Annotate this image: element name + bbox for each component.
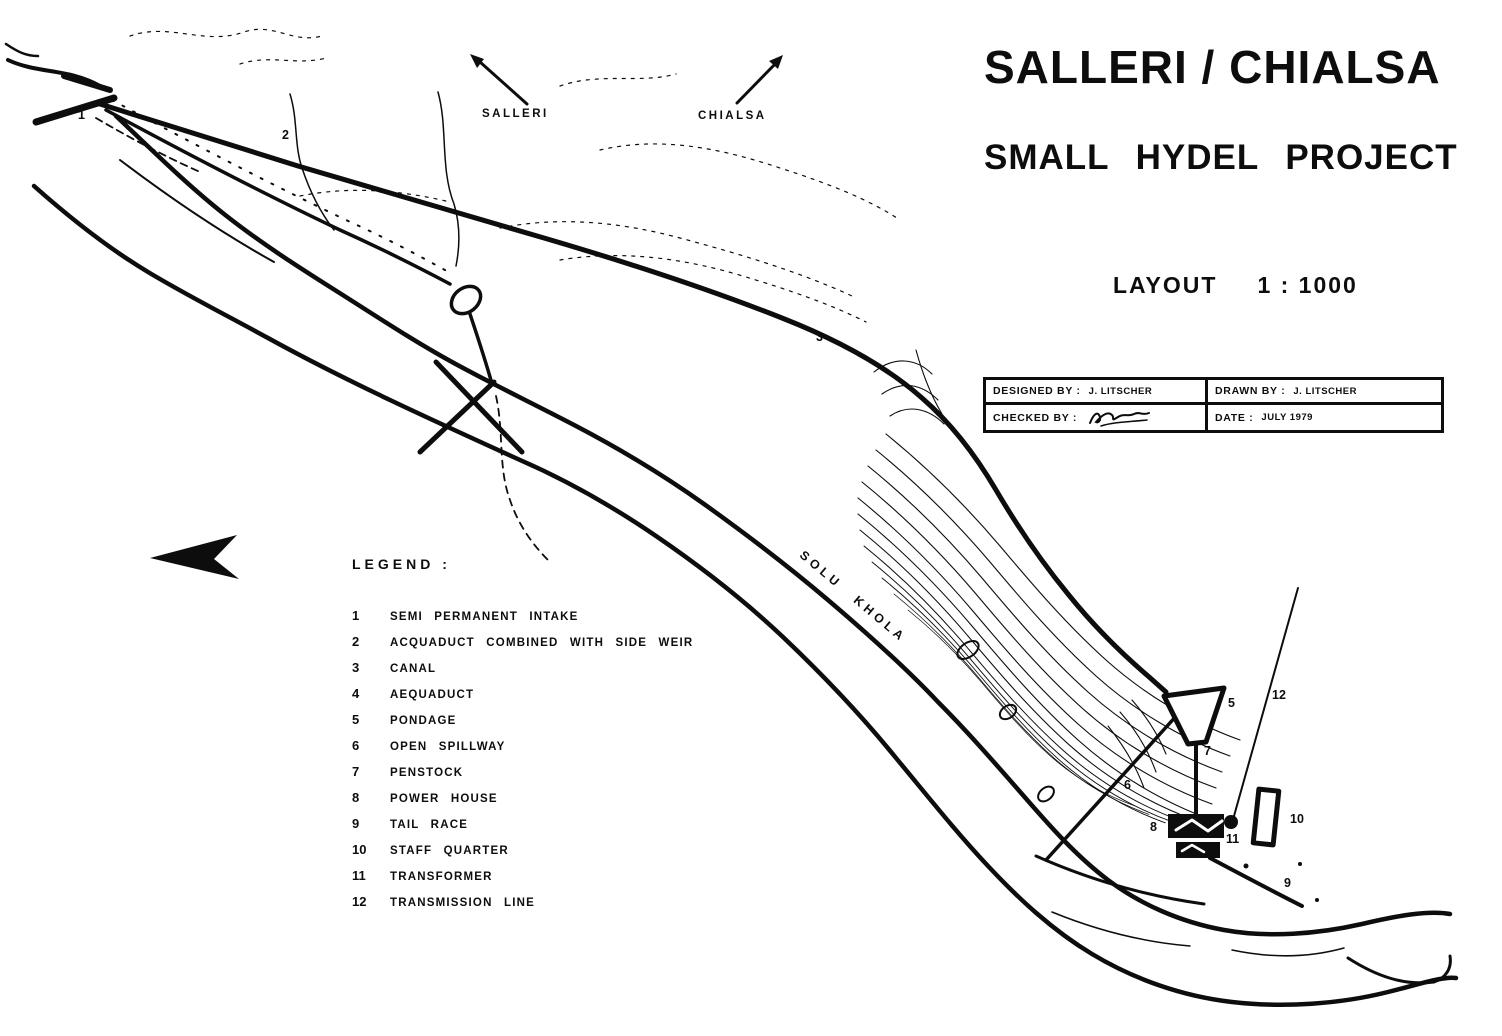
transmission-line-path: [1234, 588, 1298, 816]
legend-title: LEGEND :: [352, 556, 693, 572]
staff-quarter-shape: [1253, 789, 1279, 845]
direction-arrows: [470, 54, 783, 104]
pondage-funnel-shape: [1164, 688, 1224, 744]
legend-item-label: AEQUADUCT: [390, 689, 474, 701]
drawn-by-cell: DRAWN BY : J. LITSCHER: [1208, 380, 1441, 405]
legend-item-label: TRANSMISSION LINE: [390, 897, 535, 909]
legend-item-num: 2: [352, 634, 390, 649]
legend-item-num: 5: [352, 712, 390, 727]
checked-by-signature: [1087, 407, 1157, 429]
chialsa-arrow: [737, 55, 783, 103]
legend: LEGEND : 1SEMI PERMANENT INTAKE 2ACQUADU…: [352, 556, 693, 920]
legend-item: 11TRANSFORMER: [352, 868, 693, 884]
map-label-transmission-line: 12: [1272, 688, 1286, 702]
date-cell: DATE : JULY 1979: [1208, 405, 1441, 430]
intake-structure: [36, 76, 114, 122]
legend-item-num: 7: [352, 764, 390, 779]
legend-item: 9TAIL RACE: [352, 816, 693, 832]
map-label-penstock: 7: [1204, 744, 1211, 758]
north-arrow: [150, 535, 239, 579]
access-road-line: [1036, 856, 1204, 904]
checked-by-cell: CHECKED BY :: [986, 405, 1208, 430]
legend-item-num: 6: [352, 738, 390, 753]
legend-item-label: CANAL: [390, 663, 436, 675]
drawing-subtitle: SMALL HYDEL PROJECT: [984, 138, 1458, 178]
legend-item: 2ACQUADUCT COMBINED WITH SIDE WEIR: [352, 634, 693, 650]
drawing-title: SALLERI / CHIALSA: [984, 40, 1441, 94]
title-block: DESIGNED BY : J. LITSCHER DRAWN BY : J. …: [983, 377, 1444, 433]
legend-item-num: 1: [352, 608, 390, 623]
map-label-staff-quarter: 10: [1290, 812, 1304, 826]
legend-item-num: 4: [352, 686, 390, 701]
transformer-dot: [1224, 815, 1238, 829]
legend-item-label: TAIL RACE: [390, 819, 468, 831]
legend-item-num: 8: [352, 790, 390, 805]
spillway-line: [1046, 714, 1178, 860]
legend-item: 7PENSTOCK: [352, 764, 693, 780]
legend-item: 8POWER HOUSE: [352, 790, 693, 806]
salleri-arrow: [470, 54, 527, 104]
legend-item-num: 3: [352, 660, 390, 675]
map-label-transformer: 11: [1226, 832, 1239, 846]
drawn-by-label: DRAWN BY :: [1215, 385, 1285, 397]
aqueduct-crossing: [420, 362, 548, 560]
upper-contours-dashed: [130, 29, 900, 322]
headrace-channel: [106, 100, 492, 384]
date-label: DATE :: [1215, 412, 1253, 424]
legend-item: 6OPEN SPILLWAY: [352, 738, 693, 754]
legend-item: 12TRANSMISSION LINE: [352, 894, 693, 910]
legend-item-num: 11: [352, 868, 390, 883]
scale-label: LAYOUT: [1113, 272, 1217, 299]
scale-note: LAYOUT 1 : 1000: [1113, 272, 1358, 299]
legend-item: 4AEQUADUCT: [352, 686, 693, 702]
power-house-shape: [1168, 814, 1224, 858]
designed-by-value: J. LITSCHER: [1089, 386, 1153, 397]
map-label-tail-race: 9: [1284, 876, 1291, 890]
map-label-acquaduct-weir: 2: [282, 128, 289, 142]
legend-item-num: 12: [352, 894, 390, 909]
checked-by-label: CHECKED BY :: [993, 412, 1077, 424]
legend-item-label: SEMI PERMANENT INTAKE: [390, 611, 579, 623]
legend-item-num: 9: [352, 816, 390, 831]
side-streams: [290, 92, 459, 266]
legend-item: 10STAFF QUARTER: [352, 842, 693, 858]
map-label-canal: 3: [816, 330, 823, 344]
map-label-pondage: 5: [1228, 696, 1235, 710]
legend-item-label: PONDAGE: [390, 715, 457, 727]
map-label-open-spillway: 6: [1124, 778, 1131, 792]
contour-lines: [858, 350, 1344, 956]
legend-item: 1SEMI PERMANENT INTAKE: [352, 608, 693, 624]
legend-item: 5PONDAGE: [352, 712, 693, 728]
drawn-by-value: J. LITSCHER: [1293, 386, 1357, 397]
map-label-power-house: 8: [1150, 820, 1157, 834]
legend-item-label: OPEN SPILLWAY: [390, 741, 505, 753]
chialsa-direction-label: CHIALSA: [698, 110, 767, 122]
legend-item-num: 10: [352, 842, 390, 857]
date-value: JULY 1979: [1261, 412, 1313, 423]
salleri-direction-label: SALLERI: [482, 108, 549, 120]
map-label-intake: 1: [78, 108, 85, 122]
designed-by-label: DESIGNED BY :: [993, 385, 1081, 397]
legend-item: 3CANAL: [352, 660, 693, 676]
designed-by-cell: DESIGNED BY : J. LITSCHER: [986, 380, 1208, 405]
legend-item-label: STAFF QUARTER: [390, 845, 509, 857]
drawing-sheet: SALLERI / CHIALSA SMALL HYDEL PROJECT LA…: [0, 0, 1502, 1036]
river-bank-lines: [34, 116, 1456, 1005]
scale-value: 1 : 1000: [1257, 272, 1357, 299]
legend-item-label: ACQUADUCT COMBINED WITH SIDE WEIR: [390, 637, 693, 649]
legend-item-label: TRANSFORMER: [390, 871, 493, 883]
legend-item-label: PENSTOCK: [390, 767, 463, 779]
legend-item-label: POWER HOUSE: [390, 793, 498, 805]
